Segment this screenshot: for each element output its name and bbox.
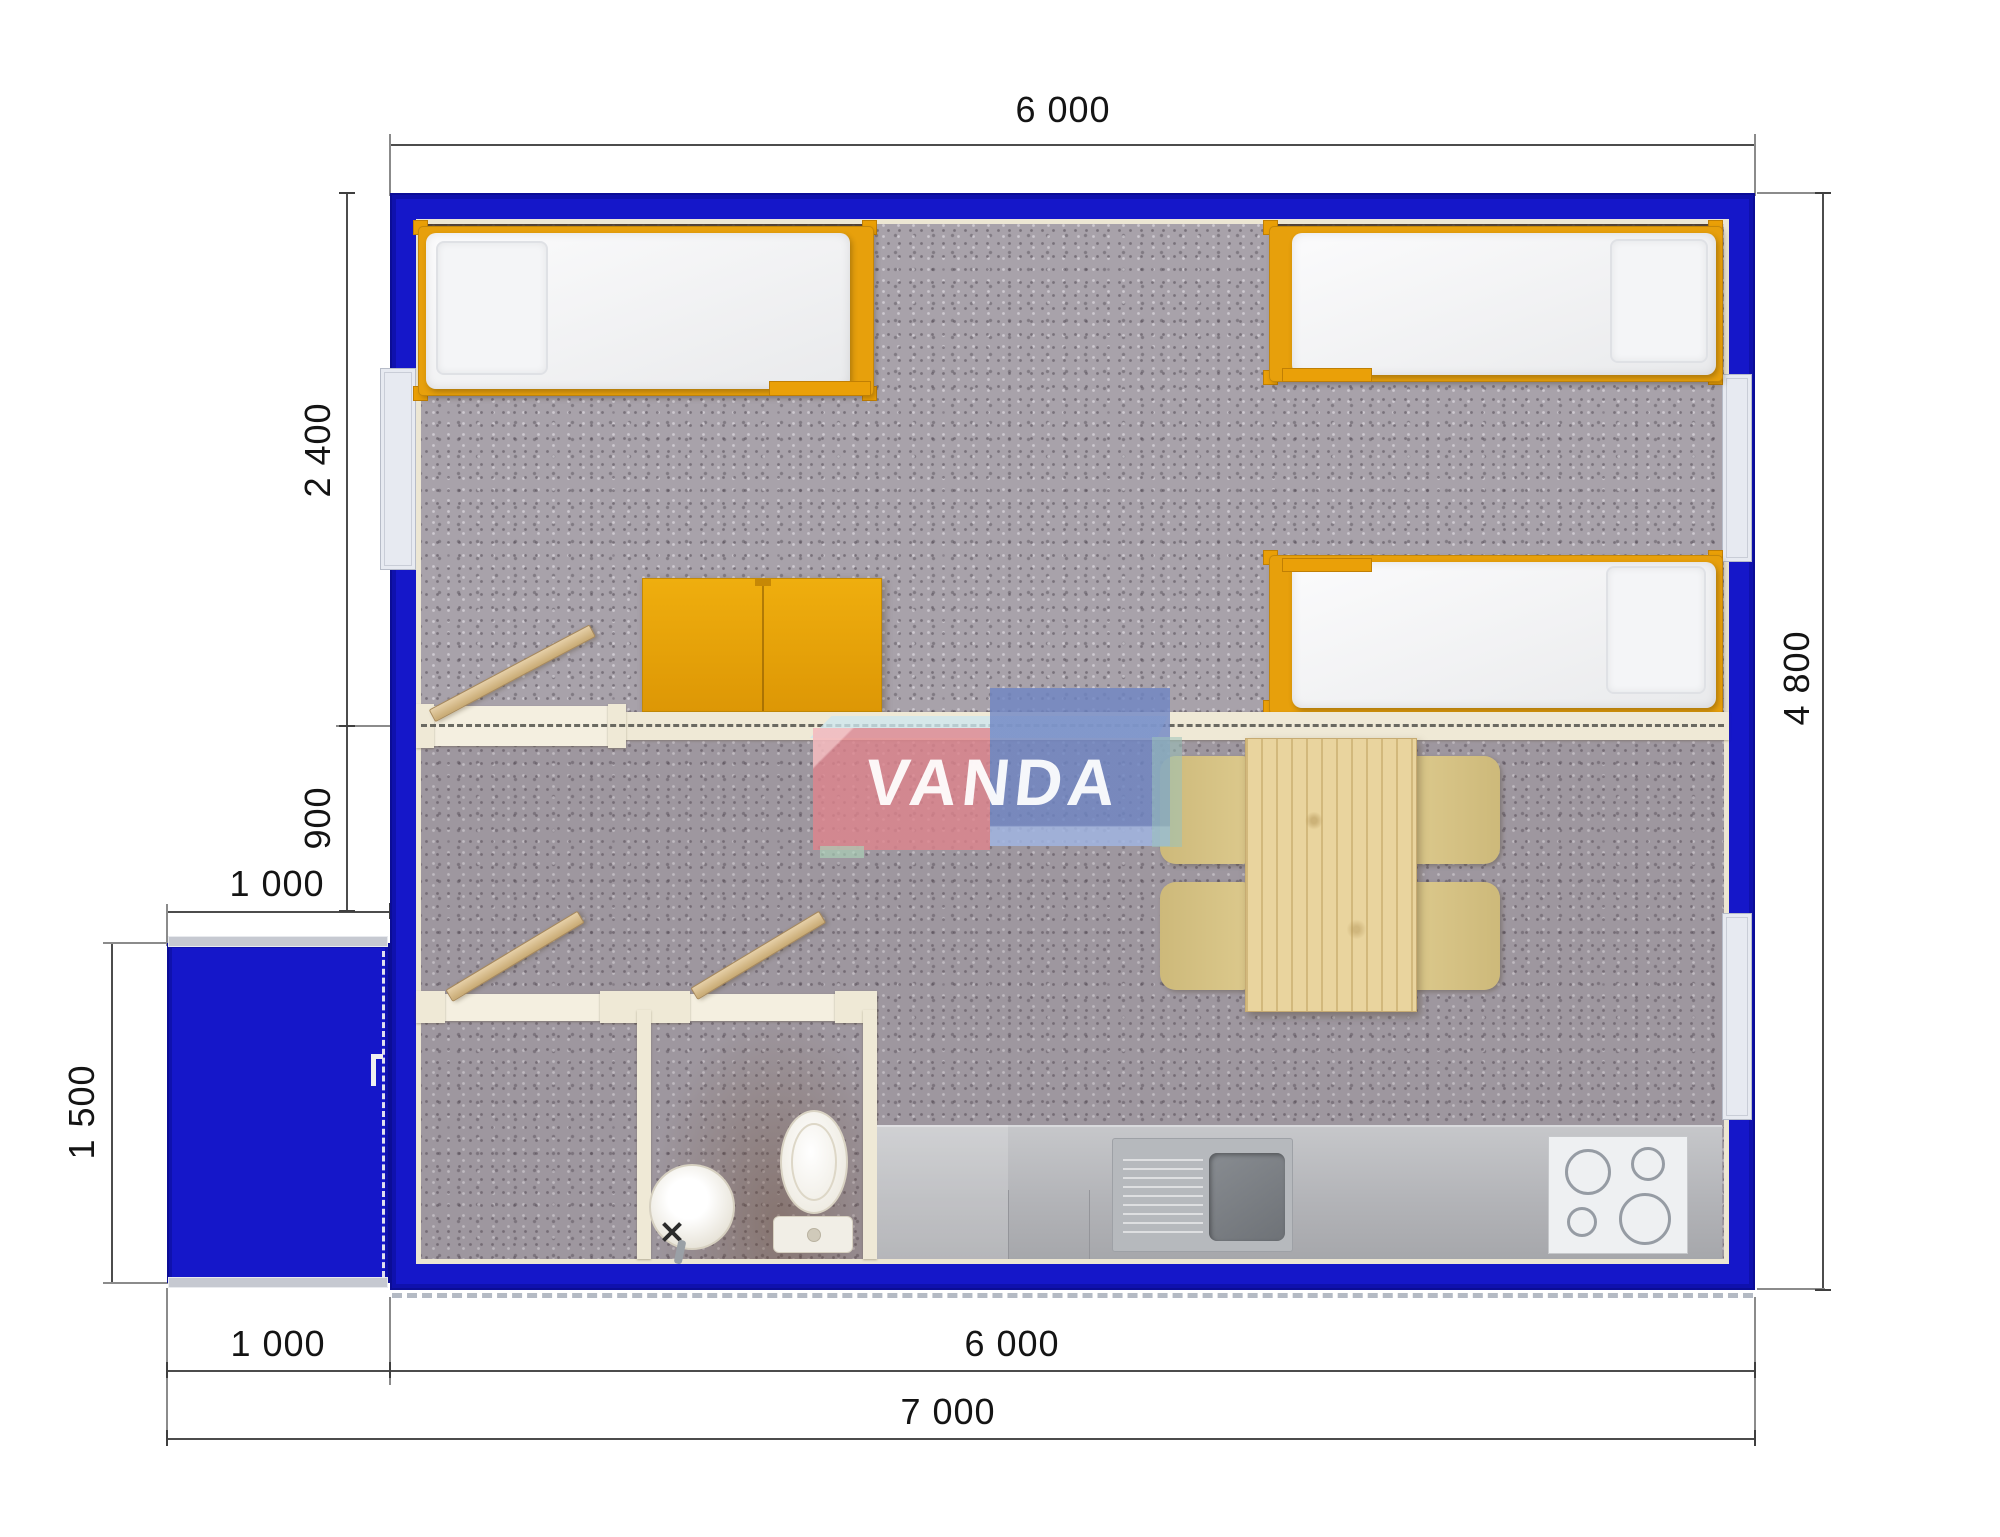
wardrobe-handle-notch: [755, 579, 771, 586]
extension-line: [103, 1282, 169, 1284]
bed-top-right: [1270, 227, 1722, 381]
bed-top-left: [419, 227, 873, 395]
extension-line: [103, 942, 169, 944]
toilet-flush-button: [807, 1228, 821, 1242]
floor-plan-canvas: 6 000 2 400 900 1 000 1 500 4 800 1 000 …: [0, 0, 2000, 1537]
dim-label-bottom-total-width: 7 000: [900, 1391, 995, 1433]
dim-label-right-height: 4 800: [1776, 630, 1818, 725]
dim-tick: [339, 910, 355, 912]
window-left-wall: [380, 368, 416, 570]
stove-cooktop: [1548, 1136, 1688, 1254]
pillow: [1606, 566, 1706, 694]
dim-line-porch-top: [167, 911, 390, 913]
door-threshold: [445, 994, 600, 1021]
sanitary-wall-vertical-right: [863, 1010, 877, 1259]
pillow: [436, 241, 548, 375]
kitchen-cabinet-section: [877, 1125, 1008, 1259]
bed-rail: [1282, 558, 1372, 572]
dim-tick: [1815, 192, 1831, 194]
bed-right-middle: [1270, 556, 1722, 714]
watermark-brand-text: VANDA: [824, 742, 1162, 822]
bed-rail: [769, 381, 871, 396]
dim-tick: [389, 1362, 391, 1378]
burner: [1567, 1207, 1597, 1237]
dim-label-bottom-main-width: 6 000: [964, 1323, 1059, 1365]
dim-line-porch-left: [111, 943, 113, 1283]
window-right-wall-upper: [1722, 374, 1752, 562]
washbasin: [649, 1164, 735, 1250]
dim-tick: [166, 1362, 168, 1378]
dim-tick: [1815, 1289, 1831, 1291]
burner: [1631, 1147, 1665, 1181]
dim-line-bottom-first: [167, 1370, 1755, 1372]
dim-label-porch-depth: 1 500: [61, 1064, 103, 1159]
dim-label-left-room-depth: 2 400: [297, 402, 339, 497]
entrance-porch: [167, 943, 390, 1283]
toilet-bowl: [780, 1110, 848, 1214]
window-right-wall-lower: [1722, 913, 1752, 1120]
watermark-logo: VANDA: [790, 670, 1210, 890]
sink-drainboard: [1123, 1159, 1203, 1237]
extension-line: [1754, 134, 1756, 196]
kitchen-sink-unit: [1112, 1138, 1293, 1252]
dim-label-bottom-porch-width: 1 000: [230, 1323, 325, 1365]
sink-basin: [1209, 1153, 1285, 1241]
platform-edge-dashed: [392, 1293, 1753, 1298]
dim-label-porch-width-top: 1 000: [229, 863, 324, 905]
burner: [1565, 1149, 1611, 1195]
dim-line-bottom-total: [167, 1438, 1755, 1440]
dim-tick: [339, 192, 355, 194]
dim-label-left-mid-depth: 900: [297, 786, 339, 849]
bed-rail: [1282, 368, 1372, 382]
logo-bottom-tab: [820, 846, 864, 858]
sanitary-wall-vertical-left: [637, 1010, 651, 1259]
dining-chair: [1412, 882, 1500, 990]
extension-line: [389, 134, 391, 196]
dim-label-top-width: 6 000: [1015, 89, 1110, 131]
door-jamb: [416, 991, 445, 1023]
dining-chair: [1412, 756, 1500, 864]
dining-chair: [1160, 882, 1248, 990]
dim-line-top: [390, 144, 1755, 146]
entrance-door-line: [382, 951, 385, 1277]
counter-seam: [1008, 1190, 1009, 1259]
pillow: [1610, 239, 1708, 363]
wardrobe-divider: [762, 579, 764, 711]
dim-tick: [1754, 1362, 1756, 1378]
dim-tick: [339, 725, 355, 727]
porch-step-top: [168, 936, 388, 947]
dim-tick: [166, 1430, 168, 1446]
counter-seam: [1089, 1190, 1090, 1259]
entrance-door-handle: [371, 1054, 376, 1086]
dining-table: [1245, 738, 1417, 1012]
dim-line-right: [1822, 193, 1824, 1290]
burner: [1619, 1193, 1671, 1245]
dim-line-left-vertical: [346, 193, 348, 912]
dim-tick: [1754, 1430, 1756, 1446]
porch-step-bottom: [168, 1277, 388, 1288]
door-threshold: [690, 994, 835, 1021]
